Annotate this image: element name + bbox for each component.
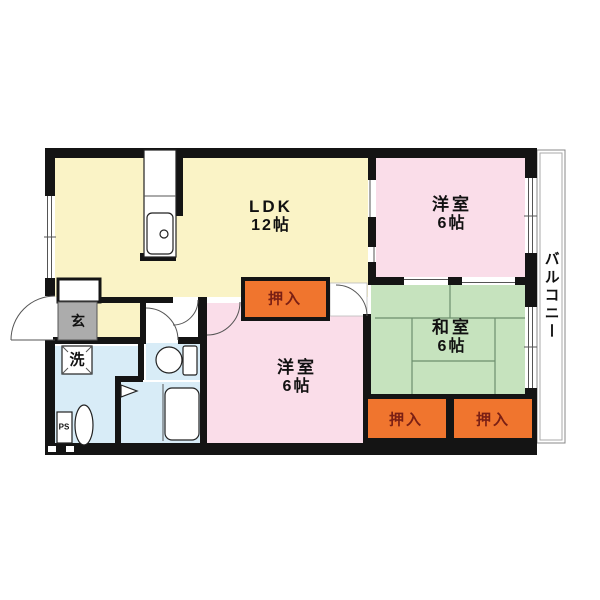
closet-label-left: 押入 xyxy=(389,411,423,428)
water-heater xyxy=(75,405,93,445)
room-ldk xyxy=(55,158,368,297)
balcony-label: バルコニー xyxy=(542,251,559,341)
room-name: 洋室 xyxy=(277,358,317,378)
entrance-block xyxy=(58,279,100,340)
kitchen-faucet xyxy=(160,230,168,238)
closet-label-right: 押入 xyxy=(476,411,510,428)
toilet-tank xyxy=(183,346,197,375)
floor-plan: LDK 12帖 洋室 6帖 和室 6帖 洋室 6帖 押入 押入 押入 バルコニー… xyxy=(0,0,600,600)
room-size: 6帖 xyxy=(277,378,317,396)
toilet-bowl xyxy=(156,347,182,373)
room-name: LDK xyxy=(249,197,293,217)
door-arc-washroom xyxy=(146,308,178,340)
bathtub xyxy=(165,388,199,440)
door-arc-hall xyxy=(173,300,198,325)
room-label-western-bottom: 洋室 6帖 xyxy=(277,358,317,396)
pipe-shaft-label: PS xyxy=(59,422,70,431)
room-name: 洋室 xyxy=(432,195,472,215)
room-size: 12帖 xyxy=(249,217,293,235)
corridor xyxy=(97,303,140,340)
shoe-cabinet xyxy=(58,279,100,302)
laundry-label: 洗 xyxy=(69,351,84,368)
door-arc-entrance xyxy=(11,296,55,340)
kitchen-unit xyxy=(144,150,176,257)
closet-label-ldk: 押入 xyxy=(268,290,302,307)
room-label-ldk: LDK 12帖 xyxy=(249,197,293,235)
room-name: 和室 xyxy=(432,318,472,338)
room-label-japanese: 和室 6帖 xyxy=(432,318,472,356)
room-size: 6帖 xyxy=(432,215,472,233)
room-size: 6帖 xyxy=(432,338,472,356)
entrance-label: 玄 xyxy=(71,313,85,329)
room-label-western-top: 洋室 6帖 xyxy=(432,195,472,233)
